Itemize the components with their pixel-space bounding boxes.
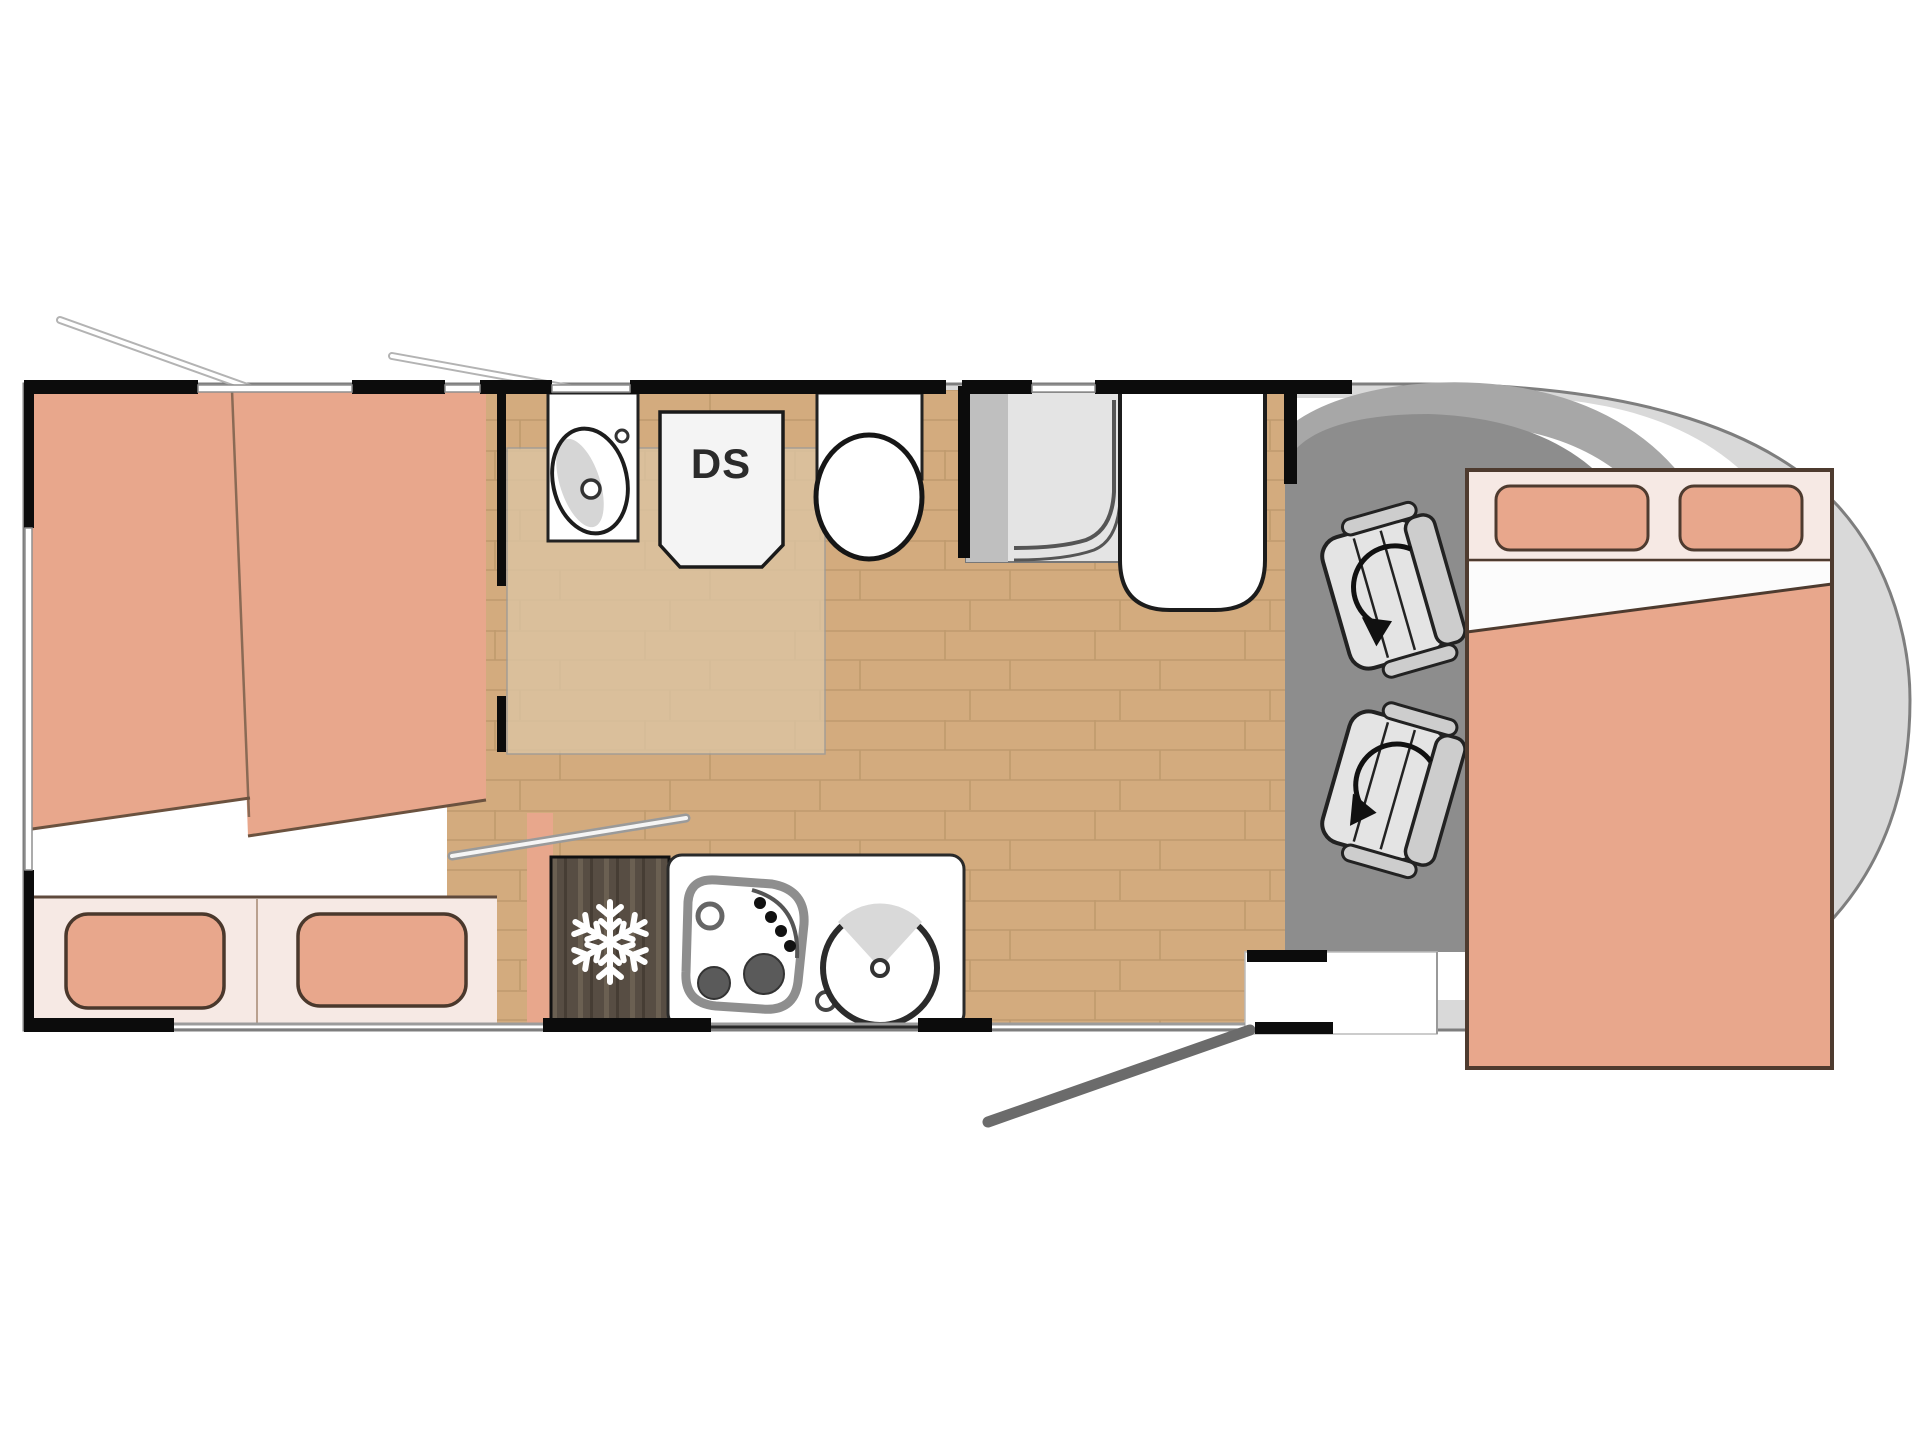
- floorplan-canvas: DS: [0, 0, 1920, 1440]
- bathroom-sink-drain: [582, 480, 600, 498]
- wall-segment-left: [24, 380, 34, 528]
- wall-segment: [962, 380, 1032, 394]
- window: [552, 385, 630, 392]
- wall-step-edge: [1255, 1022, 1333, 1034]
- wall-segment: [352, 380, 445, 394]
- toilet-bowl: [816, 435, 922, 559]
- rear-bed-left-pillow: [66, 914, 224, 1008]
- overcab-bed-blanket: [1467, 584, 1832, 1066]
- wall-segment: [24, 380, 198, 394]
- window: [445, 385, 480, 392]
- wall-segment-bottom: [24, 1018, 174, 1032]
- faucet-dot: [616, 430, 628, 442]
- hob: [686, 880, 804, 1009]
- hob-burner-large: [698, 967, 730, 999]
- rear-bed-right-pillow: [298, 914, 466, 1006]
- wall-segment-bottom: [918, 1018, 992, 1032]
- overcab-bed-pillow-right: [1680, 486, 1802, 550]
- window-rear: [25, 528, 32, 870]
- kitchen-sink-drain: [872, 960, 888, 976]
- wall-stub: [1284, 394, 1297, 484]
- shower-cabinet-label: DS: [691, 440, 751, 487]
- overcab-bed: [1467, 470, 1832, 1068]
- wall-bathroom-stub: [497, 696, 506, 752]
- entry-step: [1245, 952, 1437, 1034]
- hob-burner-large: [744, 954, 784, 994]
- window: [1032, 385, 1095, 392]
- shower-tray: [966, 392, 1120, 562]
- kitchen-sink: [823, 904, 937, 1025]
- wall-segment-left: [24, 870, 34, 1030]
- overcab-bed-pillow-left: [1496, 486, 1648, 550]
- wall-segment-bottom: [543, 1018, 711, 1032]
- rear-bed-right-mattress: [232, 390, 486, 836]
- wardrobe: [1120, 390, 1265, 610]
- shower-cabinet: [660, 412, 783, 567]
- window: [198, 385, 352, 392]
- wall-toilet-side: [958, 386, 970, 558]
- wall-segment: [480, 380, 552, 394]
- wall-bathroom: [497, 386, 506, 586]
- wall-segment: [1095, 380, 1352, 394]
- wall-segment: [630, 380, 946, 394]
- rear-bed-left-mattress: [32, 390, 250, 829]
- wall-step-edge: [1247, 950, 1327, 962]
